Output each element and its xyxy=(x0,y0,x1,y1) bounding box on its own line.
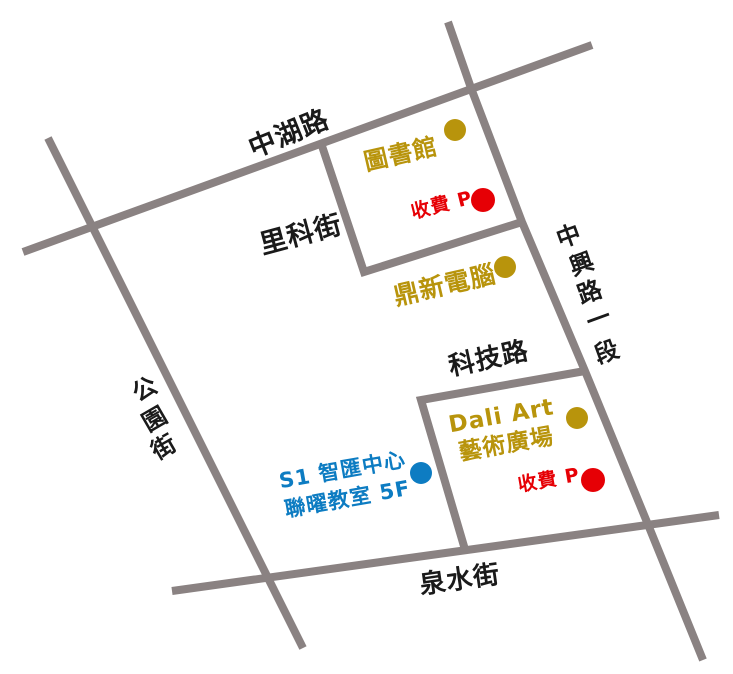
library-marker-icon xyxy=(444,119,466,141)
location-map: 中湖路 里科街 科技路 泉水街 公 園 街 中 興 路 一 段 圖書館 收費 P… xyxy=(0,0,733,674)
road-keji-road xyxy=(421,371,585,553)
paid-parking-south-marker-icon xyxy=(581,468,605,492)
dingxin-marker-icon xyxy=(494,256,516,278)
road-network xyxy=(0,0,733,674)
dali-art-marker-icon xyxy=(566,407,588,429)
s1-center-marker-icon xyxy=(410,462,432,484)
road-gongyuan-street xyxy=(48,138,303,648)
